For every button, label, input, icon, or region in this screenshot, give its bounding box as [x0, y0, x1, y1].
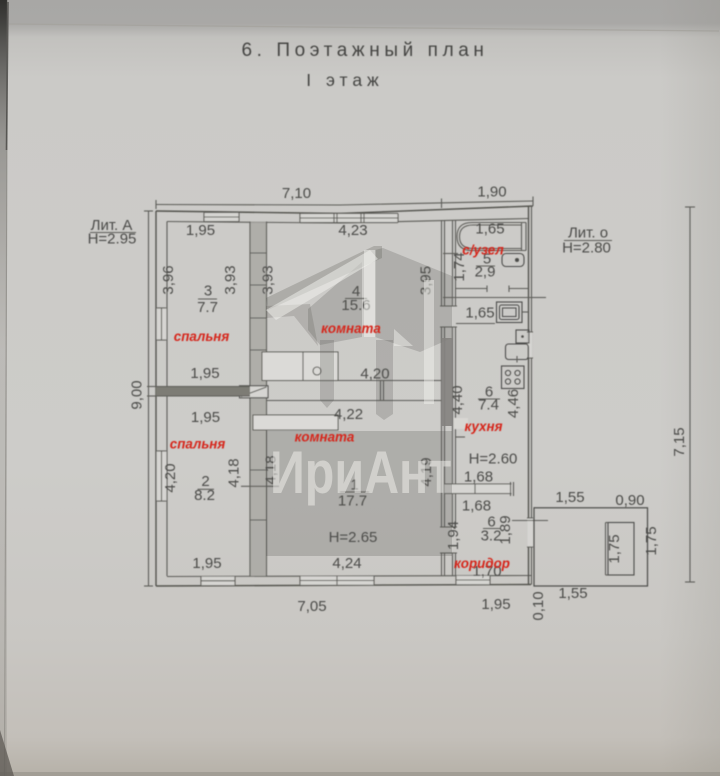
svg-text:1,55: 1,55: [558, 585, 587, 602]
svg-text:0,10: 0,10: [530, 591, 547, 620]
svg-text:комната: комната: [295, 430, 355, 445]
svg-text:0,90: 0,90: [615, 492, 644, 509]
svg-text:1,55: 1,55: [555, 489, 584, 506]
svg-text:2,9: 2,9: [475, 264, 496, 281]
svg-text:4,22: 4,22: [334, 406, 363, 423]
svg-text:1,95: 1,95: [190, 365, 219, 382]
svg-text:3,93: 3,93: [260, 265, 277, 294]
svg-text:комната: комната: [321, 321, 381, 336]
svg-text:ИриАнт: ИриАнт: [270, 439, 452, 506]
svg-text:1,68: 1,68: [462, 498, 491, 515]
svg-text:1,95: 1,95: [186, 222, 215, 239]
svg-text:4,20: 4,20: [162, 463, 179, 492]
svg-text:1,90: 1,90: [477, 184, 506, 201]
svg-text:4,18: 4,18: [226, 458, 243, 487]
svg-text:1,68: 1,68: [464, 469, 493, 486]
svg-text:1,95: 1,95: [192, 555, 221, 572]
svg-text:3,96: 3,96: [160, 265, 177, 294]
svg-text:7,10: 7,10: [282, 185, 311, 202]
svg-text:7,05: 7,05: [297, 598, 326, 615]
svg-text:спальня: спальня: [174, 329, 230, 344]
svg-text:1,75: 1,75: [643, 526, 660, 555]
svg-text:6. Поэтажный план: 6. Поэтажный план: [241, 40, 488, 61]
svg-text:с/узел: с/узел: [462, 243, 504, 258]
svg-text:1,95: 1,95: [191, 409, 220, 426]
svg-text:8.2: 8.2: [194, 487, 215, 504]
svg-text:1,65: 1,65: [465, 305, 494, 322]
svg-text:4,23: 4,23: [338, 222, 367, 239]
svg-text:1,65: 1,65: [475, 221, 504, 238]
svg-text:7.7: 7.7: [197, 299, 218, 316]
svg-text:7,15: 7,15: [671, 427, 688, 456]
svg-text:9,00: 9,00: [129, 380, 146, 409]
svg-text:1,95: 1,95: [481, 596, 510, 613]
svg-text:Н=2.60: Н=2.60: [469, 451, 518, 468]
svg-text:3,93: 3,93: [222, 265, 239, 294]
svg-text:1,75: 1,75: [606, 534, 623, 563]
svg-text:4,46: 4,46: [505, 389, 522, 418]
svg-text:1,89: 1,89: [497, 515, 514, 544]
svg-text:кухня: кухня: [465, 419, 503, 434]
svg-text:3: 3: [204, 283, 212, 300]
svg-text:4,24: 4,24: [332, 555, 361, 572]
svg-text:спальня: спальня: [170, 437, 226, 452]
svg-text:I этаж: I этаж: [306, 70, 384, 90]
svg-text:Н=2.80: Н=2.80: [562, 240, 611, 257]
svg-text:Н=2.95: Н=2.95: [88, 231, 137, 248]
svg-text:коридор: коридор: [454, 556, 510, 571]
svg-text:7.4: 7.4: [478, 397, 499, 414]
